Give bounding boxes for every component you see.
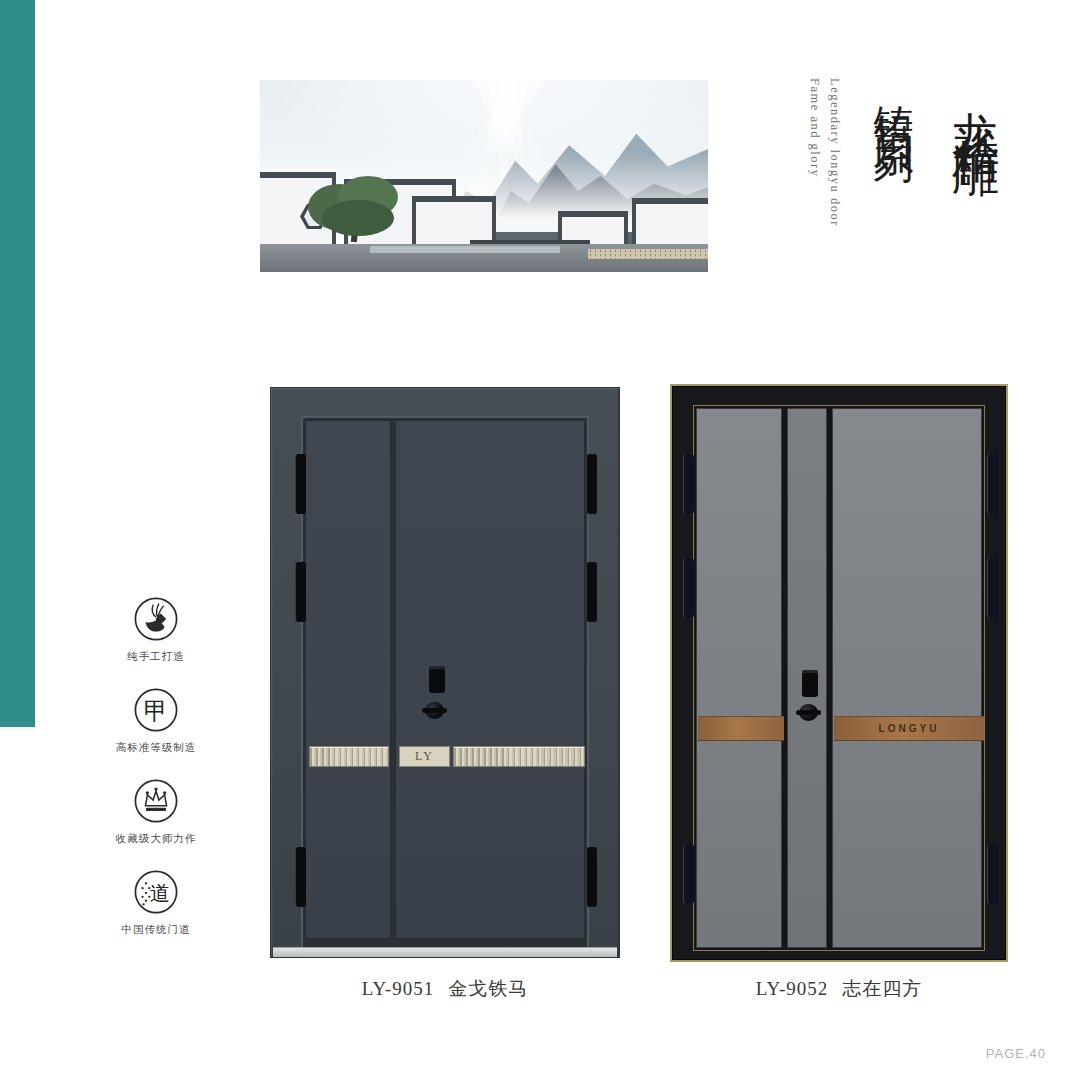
longyu-brand-label: LONGYU bbox=[879, 723, 940, 734]
hinge bbox=[295, 847, 306, 907]
ly-badge: LY bbox=[399, 746, 450, 767]
feature-collection: 收藏级大师力作 bbox=[116, 778, 197, 846]
hinge bbox=[987, 844, 998, 904]
product-model: LY-9052 bbox=[756, 978, 829, 999]
product-caption-ly9051: LY-9051金戈铁马 bbox=[270, 976, 620, 1002]
feature-label: 纯手工打造 bbox=[127, 650, 185, 664]
smart-lock-keypad bbox=[429, 666, 445, 693]
door-knob bbox=[799, 704, 818, 721]
hinge bbox=[586, 562, 597, 622]
hero-image bbox=[260, 80, 708, 272]
pebble-strip bbox=[588, 249, 708, 259]
door-leaf-right bbox=[395, 420, 585, 939]
feature-tradition: 道 中国传统门道 bbox=[122, 869, 191, 937]
product-name: 志在四方 bbox=[842, 978, 922, 999]
product-model: LY-9051 bbox=[362, 978, 435, 999]
hinge bbox=[683, 844, 694, 904]
english-line-1: Fame and glory bbox=[807, 78, 822, 227]
product-name: 金戈铁马 bbox=[448, 978, 528, 999]
hinge bbox=[683, 558, 694, 618]
hinge bbox=[987, 454, 998, 514]
product-door-ly9051: LY bbox=[270, 387, 620, 958]
teal-accent-bar bbox=[0, 0, 35, 727]
product-caption-ly9052: LY-9052志在四方 bbox=[670, 976, 1008, 1002]
series-title-block: Fame and glory Legendary longyu door 铸铝门… bbox=[807, 74, 1008, 227]
door-knob bbox=[425, 702, 444, 719]
product-door-ly9052: LONGYU bbox=[670, 384, 1008, 962]
hinge bbox=[987, 558, 998, 618]
feature-label: 收藏级大师力作 bbox=[116, 832, 197, 846]
hand-craft-icon bbox=[133, 596, 179, 642]
door-leaf-left bbox=[696, 408, 782, 948]
hinge bbox=[586, 454, 597, 514]
feature-label: 中国传统门道 bbox=[122, 923, 191, 937]
jia-grade-icon: 甲 bbox=[133, 687, 179, 733]
smart-lock-keypad bbox=[802, 670, 818, 697]
feature-label: 高标准等级制造 bbox=[116, 741, 197, 755]
hinge bbox=[586, 847, 597, 907]
feature-grade-a: 甲 高标准等级制造 bbox=[116, 687, 197, 755]
copper-strip bbox=[698, 716, 784, 741]
copper-strip: LONGYU bbox=[834, 716, 984, 741]
door-threshold bbox=[273, 947, 617, 957]
door-frame-reveal bbox=[301, 416, 589, 951]
dao-tradition-icon: 道 bbox=[133, 869, 179, 915]
series-title-main: 龙裕精雕 bbox=[945, 74, 1008, 126]
hinge bbox=[683, 454, 694, 514]
hinge bbox=[295, 562, 306, 622]
hinge bbox=[295, 454, 306, 514]
english-line-2: Legendary longyu door bbox=[827, 78, 842, 227]
door-frame-reveal bbox=[694, 406, 984, 950]
reflecting-pool bbox=[370, 246, 560, 253]
page-number: PAGE.40 bbox=[986, 1046, 1046, 1061]
door-leaf-right bbox=[832, 408, 982, 948]
series-title-sub: 铸铝门系列 bbox=[866, 74, 921, 124]
feature-handcraft: 纯手工打造 bbox=[127, 596, 185, 664]
crown-icon bbox=[133, 778, 179, 824]
series-title-english: Fame and glory Legendary longyu door bbox=[807, 78, 842, 227]
decorative-strip bbox=[453, 746, 585, 767]
svg-text:甲: 甲 bbox=[144, 698, 168, 724]
feature-column: 纯手工打造 甲 高标准等级制造 收藏级大师力作 bbox=[111, 596, 201, 960]
catalog-page: Fame and glory Legendary longyu door 铸铝门… bbox=[0, 0, 1080, 1091]
decorative-strip bbox=[309, 746, 389, 767]
door-leaf-left bbox=[305, 420, 391, 939]
svg-text:道: 道 bbox=[150, 882, 170, 904]
